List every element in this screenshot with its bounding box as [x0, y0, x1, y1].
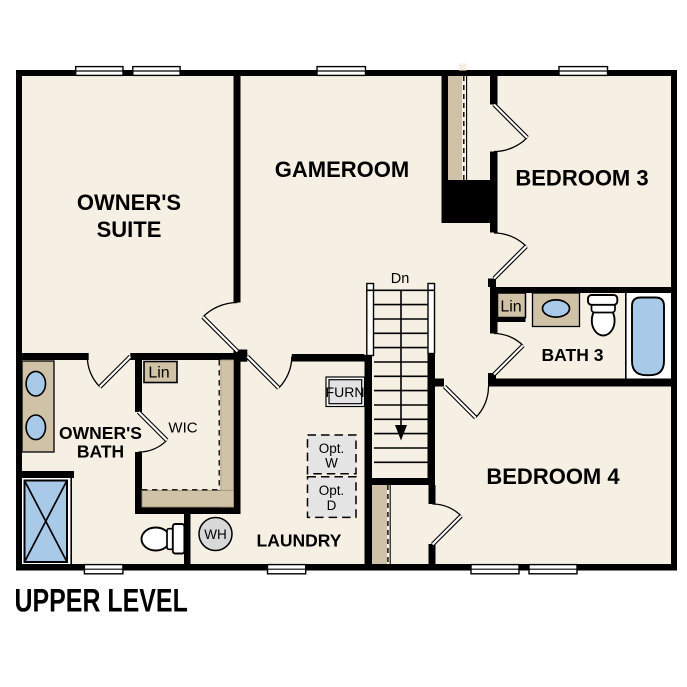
- svg-text:UPPER LEVEL: UPPER LEVEL: [15, 584, 188, 620]
- svg-text:WH: WH: [204, 527, 227, 542]
- svg-text:Lin: Lin: [148, 365, 169, 382]
- svg-text:SUITE: SUITE: [97, 217, 162, 242]
- svg-text:OWNER'S: OWNER'S: [59, 423, 142, 443]
- svg-text:Lin: Lin: [500, 299, 521, 316]
- svg-text:WIC: WIC: [168, 420, 197, 437]
- svg-text:LAUNDRY: LAUNDRY: [257, 531, 342, 551]
- svg-text:BEDROOM 3: BEDROOM 3: [515, 166, 648, 191]
- svg-text:BATH 3: BATH 3: [542, 345, 604, 365]
- svg-text:OWNER'S: OWNER'S: [77, 190, 181, 215]
- svg-text:W: W: [325, 456, 338, 471]
- svg-text:Dn: Dn: [391, 271, 410, 287]
- svg-text:BEDROOM 4: BEDROOM 4: [486, 464, 620, 489]
- svg-text:D: D: [327, 498, 337, 513]
- svg-text:GAMEROOM: GAMEROOM: [275, 157, 409, 182]
- svg-text:Opt.: Opt.: [319, 483, 345, 498]
- svg-text:FURN: FURN: [326, 384, 365, 400]
- svg-text:Opt.: Opt.: [319, 441, 345, 456]
- svg-text:BATH: BATH: [77, 442, 124, 462]
